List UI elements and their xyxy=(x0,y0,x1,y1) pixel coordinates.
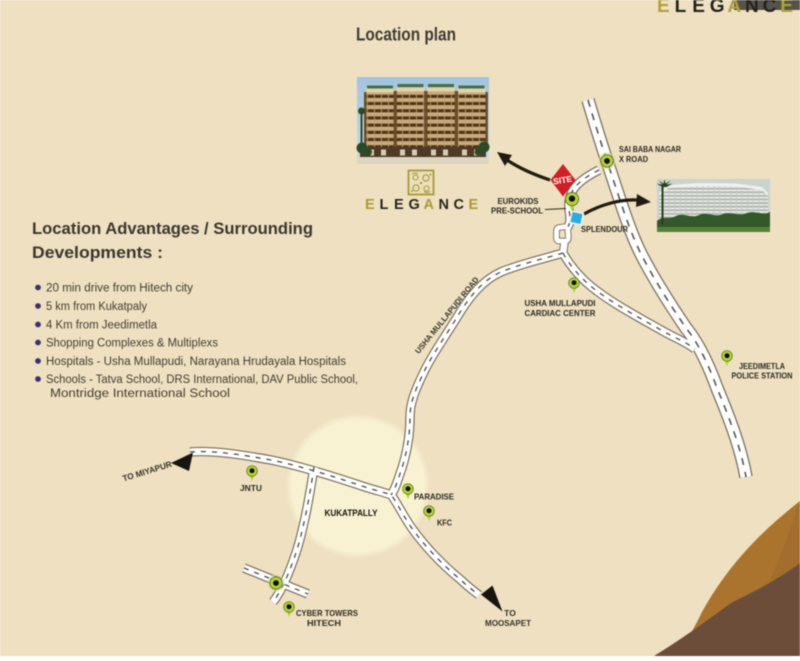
svg-text:G: G xyxy=(409,197,420,213)
svg-text:E: E xyxy=(469,197,479,213)
svg-text:A: A xyxy=(727,0,741,17)
svg-text:Shopping Complexes & Multiple: Shopping Complexes & Multiplexs xyxy=(46,338,218,350)
svg-text:G: G xyxy=(710,0,725,17)
svg-text:E: E xyxy=(365,197,375,213)
svg-text:5 km from Kukatpaly: 5 km from Kukatpaly xyxy=(46,301,147,313)
svg-text:USHA MULLAPUDI: USHA MULLAPUDI xyxy=(525,298,596,308)
svg-text:EUROKIDS: EUROKIDS xyxy=(498,196,539,206)
svg-text:Location Advantages / Surround: Location Advantages / Surrounding xyxy=(32,219,313,238)
svg-text:L: L xyxy=(380,197,389,213)
svg-text:MOOSAPET: MOOSAPET xyxy=(485,618,532,628)
svg-text:SPLENDOUR: SPLENDOUR xyxy=(581,224,628,234)
svg-text:JEEDIMETLA: JEEDIMETLA xyxy=(739,361,785,371)
svg-text:HITECH: HITECH xyxy=(307,618,341,628)
svg-text:N: N xyxy=(439,197,449,213)
svg-text:CARDIAC CENTER: CARDIAC CENTER xyxy=(525,308,596,318)
svg-text:Hospitals - Usha Mullapudi, Na: Hospitals - Usha Mullapudi, Narayana Hru… xyxy=(46,356,346,368)
svg-text:4 Km from Jeedimetla: 4 Km from Jeedimetla xyxy=(46,320,158,332)
svg-text:PARADISE: PARADISE xyxy=(414,492,454,502)
svg-text:KUKATPALLY: KUKATPALLY xyxy=(325,508,378,518)
svg-text:TO: TO xyxy=(504,608,516,618)
svg-text:A: A xyxy=(424,197,435,213)
svg-text:E: E xyxy=(394,197,404,213)
svg-text:E: E xyxy=(657,0,670,17)
svg-text:C: C xyxy=(763,0,777,17)
svg-text:KFC: KFC xyxy=(437,518,452,528)
svg-text:E: E xyxy=(780,0,793,17)
svg-text:CYBER TOWERS: CYBER TOWERS xyxy=(296,608,358,618)
svg-text:L: L xyxy=(675,0,687,17)
svg-text:SAI BABA NAGAR: SAI BABA NAGAR xyxy=(619,144,681,154)
svg-text:Developments :: Developments : xyxy=(32,243,163,262)
svg-text:20 min drive from Hitech city: 20 min drive from Hitech city xyxy=(46,283,193,295)
svg-text:C: C xyxy=(454,197,465,213)
svg-text:Montridge International School: Montridge International School xyxy=(50,388,230,400)
svg-text:PRE-SCHOOL: PRE-SCHOOL xyxy=(491,206,543,216)
svg-text:POLICE STATION: POLICE STATION xyxy=(732,371,793,381)
svg-text:N: N xyxy=(745,0,759,17)
svg-text:JNTU: JNTU xyxy=(240,483,262,493)
svg-text:E: E xyxy=(692,0,705,17)
svg-text:Schools - Tatva School, DRS In: Schools - Tatva School, DRS Internationa… xyxy=(46,374,358,386)
svg-text:Location plan: Location plan xyxy=(356,25,456,45)
svg-text:X ROAD: X ROAD xyxy=(619,154,648,164)
